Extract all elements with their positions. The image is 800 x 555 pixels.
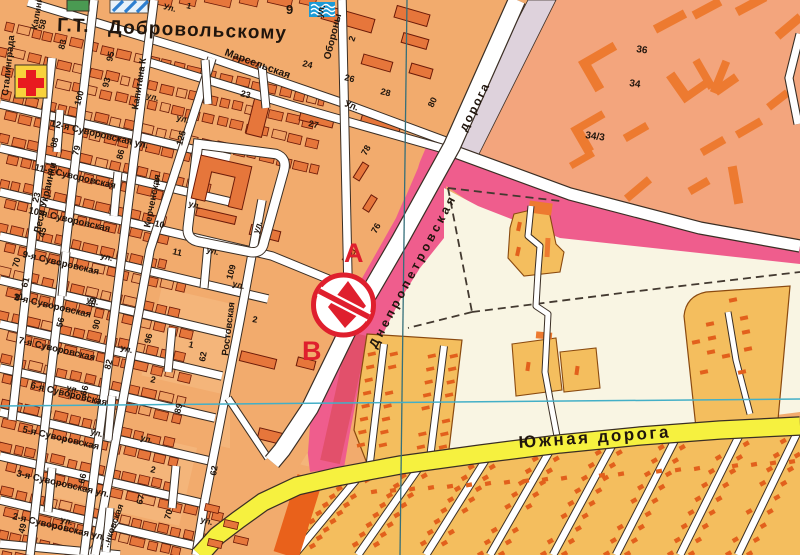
svg-text:36: 36	[636, 44, 649, 57]
svg-text:62: 62	[197, 351, 209, 363]
svg-text:A: A	[344, 238, 364, 268]
svg-text:21: 21	[14, 292, 24, 302]
svg-text:62: 62	[208, 465, 220, 477]
svg-text:9: 9	[286, 2, 293, 17]
svg-text:34: 34	[629, 78, 642, 91]
svg-text:Г.Т.: Г.Т.	[57, 15, 90, 37]
svg-text:B: B	[302, 336, 322, 366]
